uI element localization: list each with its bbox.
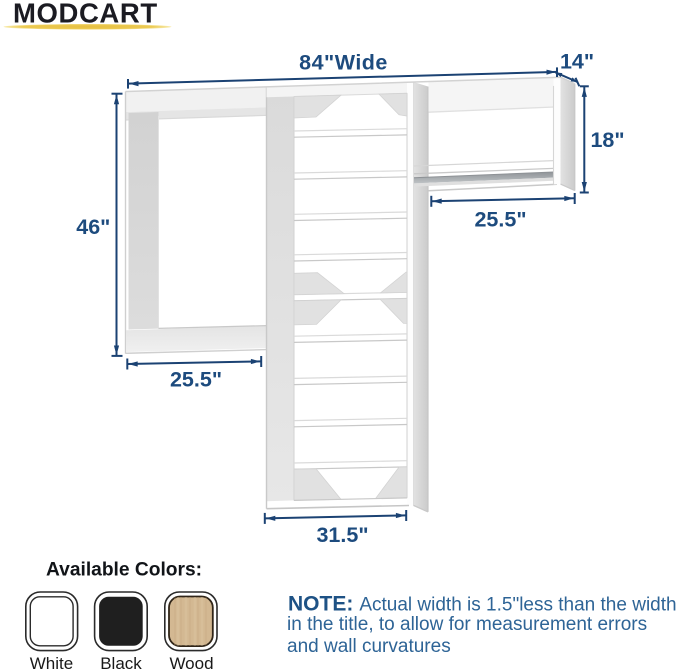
svg-text:and wall curvatures: and wall curvatures <box>287 636 451 657</box>
svg-text:84"Wide: 84"Wide <box>299 50 388 74</box>
svg-text:Available Colors:: Available Colors: <box>46 560 202 581</box>
svg-text:MODCART: MODCART <box>13 0 158 29</box>
svg-text:25.5": 25.5" <box>474 208 526 232</box>
svg-text:White: White <box>30 654 73 672</box>
svg-text:NOTE:Actual width is 1.5"less: NOTE:Actual width is 1.5"less than the w… <box>288 593 677 616</box>
svg-text:31.5": 31.5" <box>316 523 368 547</box>
svg-text:46": 46" <box>76 215 110 239</box>
svg-text:in the title, to allow for mea: in the title, to allow for measurement e… <box>287 614 647 635</box>
svg-text:14": 14" <box>560 50 594 74</box>
svg-text:18": 18" <box>590 128 624 152</box>
svg-text:25.5": 25.5" <box>170 368 222 392</box>
svg-text:Black: Black <box>100 654 142 672</box>
svg-text:Wood: Wood <box>169 654 213 672</box>
